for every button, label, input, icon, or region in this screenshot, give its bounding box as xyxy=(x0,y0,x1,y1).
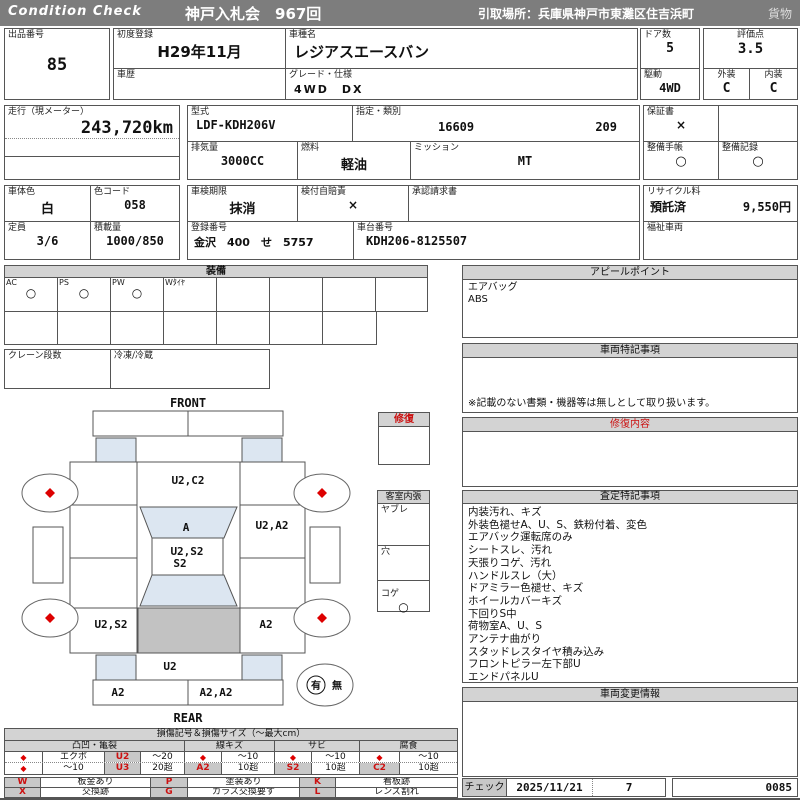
model-code-cell: 型式 LDF-KDH206V xyxy=(188,106,353,142)
mark-left-rear: U2,S2 xyxy=(94,618,127,631)
legend-cell: ガラス交換要す xyxy=(188,788,300,797)
legend-code-k: K xyxy=(300,778,336,787)
interior-grade-cell: 内装 C xyxy=(750,69,797,99)
legend-code-w: W xyxy=(5,778,41,787)
inspection-cell: 車検期限 抹消 xyxy=(188,186,298,222)
appeal-line: エアバッグ xyxy=(468,282,792,294)
color-code-label: 色コード xyxy=(91,186,179,198)
jibaiseki-cell: 検付自賠責 × xyxy=(298,186,409,222)
freezer-label: 冷凍/冷蔵 xyxy=(111,350,269,362)
assessment-panel: 査定特記事項 内装汚れ、キズ 外装色褪せA、U、S、鉄粉付着、変色 エアバック運… xyxy=(462,490,798,683)
doors-cell: ドア数 5 xyxy=(641,29,699,69)
damage-diamond-icon: ◆ xyxy=(185,752,222,762)
serial-box: 0085 xyxy=(672,778,798,797)
legend-cell: エクボ xyxy=(43,752,105,762)
welfare-label: 福祉車両 xyxy=(644,222,797,234)
legend-group-rust: サビ xyxy=(275,741,360,751)
right-mirror xyxy=(310,527,340,583)
mark-rear-bumper-right: A2,A2 xyxy=(199,686,232,699)
exterior-grade-label: 外装 xyxy=(704,69,749,81)
maintenance-book-label: 整備手帳 xyxy=(644,142,718,154)
equipment-cell-empty xyxy=(111,312,164,344)
exterior-grade-cell: 外装 C xyxy=(704,69,750,99)
grade-value: 4WD DX xyxy=(286,81,637,97)
legend-cell: 10超 xyxy=(400,763,457,774)
repair-codes-legend: W 板金あり P 塗装あり K 看板跡 X 交換跡 G ガラス交換要す L レン… xyxy=(4,777,458,798)
equipment-cell-empty xyxy=(5,312,58,344)
recycle-cell: リサイクル料 預託済 9,550円 xyxy=(644,186,797,222)
assessment-line: 下回りS中 xyxy=(468,608,792,621)
crane-freezer-box: クレーン段数 冷凍/冷蔵 xyxy=(4,349,270,389)
lot-number-label: 出品番号 xyxy=(5,29,109,41)
freezer-cell: 冷凍/冷蔵 xyxy=(111,350,269,388)
history-label: 車歴 xyxy=(114,69,285,81)
legend-code-s2: S2 xyxy=(275,763,312,774)
vehicle-notes-title: 車両特記事項 xyxy=(463,344,797,358)
model-name-cell: 車種名 レジアスエースバン xyxy=(286,29,637,69)
recycle-box: リサイクル料 預託済 9,550円 福祉車両 xyxy=(643,185,798,260)
appeal-line: ABS xyxy=(468,294,792,306)
legend-group-dent: 凸凹・亀裂 xyxy=(5,741,185,751)
capacity-value: 3/6 xyxy=(5,234,90,248)
legend-cell: ～10 xyxy=(312,752,360,762)
maintenance-book-cell: 整備手帳 ○ xyxy=(644,142,719,179)
maintenance-book-value: ○ xyxy=(644,154,718,169)
mileage-box: 走行（現メーター） 243,720km xyxy=(4,105,180,180)
cabin-row-burn: コゲ ○ xyxy=(378,580,429,611)
jibaiseki-value: × xyxy=(298,198,408,212)
legend-code-g: G xyxy=(151,788,188,797)
mark-tailgate: U2 xyxy=(163,660,176,673)
assessment-line: ハンドルスレ（大） xyxy=(468,570,792,583)
maintenance-record-label: 整備記録 xyxy=(719,142,797,154)
capacity-cell: 定員 3/6 xyxy=(5,222,91,259)
mark-rear-bumper-left: A2 xyxy=(111,686,124,699)
mark-right-rear: A2 xyxy=(259,618,272,631)
history-cell: 車歴 xyxy=(114,69,286,99)
crane-cell: クレーン段数 xyxy=(5,350,111,388)
mileage-divider xyxy=(5,138,179,156)
assessment-title: 査定特記事項 xyxy=(463,491,797,504)
legend-code-u3: U3 xyxy=(105,763,141,774)
legend-cell: ～10 xyxy=(222,752,275,762)
recycle-status: 預託済 xyxy=(650,198,686,215)
title-bar: Condition Check 神戸入札会 967回 引取場所：兵庫県神戸市東灘… xyxy=(0,0,800,26)
lot-number-value: 85 xyxy=(5,55,109,75)
appeal-panel: アピールポイント エアバッグ ABS xyxy=(462,265,798,338)
pickup-location: 引取場所：兵庫県神戸市東灘区住吉浜町 xyxy=(478,5,694,22)
legend-cell: 10超 xyxy=(312,763,360,774)
rear-label: REAR xyxy=(174,711,204,725)
first-registration-label: 初度登録 xyxy=(114,29,285,41)
type-number-value: 16609 xyxy=(438,120,474,134)
type-class-label: 指定・類別 xyxy=(353,106,639,118)
load-value: 1000/850 xyxy=(91,234,179,248)
exterior-grade-value: C xyxy=(704,81,749,96)
damage-diamond-icon: ◆ xyxy=(5,763,43,774)
legend-cell: 10超 xyxy=(222,763,275,774)
load-cell: 積載量 1000/850 xyxy=(91,222,179,259)
damage-diagram: FRONT U2,C2 A U2,S2 S2 U2,A2 U2,S2 A2 xyxy=(0,398,368,730)
assessment-line: ドアミラー色褪せ、キズ xyxy=(468,582,792,595)
rear-left-corner xyxy=(96,655,136,680)
check-date: 2025/11/21 xyxy=(507,779,593,796)
damage-diamond-icon: ◆ xyxy=(360,752,400,762)
rear-cargo-panel xyxy=(138,608,240,653)
chassis-number-cell: 車台番号 KDH206-8125507 xyxy=(354,222,639,259)
interior-grade-value: C xyxy=(750,81,797,96)
front-left-corner xyxy=(96,438,136,463)
equipment-cell-empty xyxy=(323,278,376,311)
approval-label: 承認請求書 xyxy=(409,186,639,198)
displacement-cell: 排気量 3000CC xyxy=(188,142,298,179)
doors-value: 5 xyxy=(641,41,699,56)
maintenance-record-cell: 整備記録 ○ xyxy=(719,142,797,179)
mileage-value: 243,720km xyxy=(5,118,179,138)
equipment-cell-empty xyxy=(323,312,376,344)
body-color-label: 車体色 xyxy=(5,186,90,198)
warranty-empty-cell xyxy=(719,106,797,142)
engine-box: 型式 LDF-KDH206V 指定・類別 16609 209 排気量 3000C… xyxy=(187,105,640,180)
class-number-value: 209 xyxy=(595,120,617,134)
legend-cell: 看板跡 xyxy=(336,778,457,787)
equipment-cell-empty xyxy=(217,312,270,344)
doors-label: ドア数 xyxy=(641,29,699,41)
model-code-value: LDF-KDH206V xyxy=(188,118,352,132)
assessment-line: 天張りコゲ、汚れ xyxy=(468,557,792,570)
warranty-box: 保証書 × 整備手帳 ○ 整備記録 ○ xyxy=(643,105,798,180)
registration-number-value: 金沢 400 せ 5757 xyxy=(188,234,353,250)
legend-cell: ～10 xyxy=(43,763,105,774)
equipment-cell-empty xyxy=(58,312,111,344)
transmission-label: ミッション xyxy=(411,142,639,154)
legend-cell: ～10 xyxy=(400,752,457,762)
legend-title: 損傷記号＆損傷サイズ（～最大cm） xyxy=(5,729,457,741)
interior-grade-label: 内装 xyxy=(750,69,797,81)
legend-cell: ～20 xyxy=(141,752,185,762)
maintenance-record-value: ○ xyxy=(719,154,797,169)
displacement-label: 排気量 xyxy=(188,142,297,154)
left-mirror xyxy=(33,527,63,583)
drive-cell: 駆動 4WD xyxy=(641,69,699,99)
registration-number-label: 登録番号 xyxy=(188,222,353,234)
transmission-cell: ミッション MT xyxy=(411,142,639,179)
auction-title: 神戸入札会 967回 xyxy=(185,3,321,24)
assessment-line: フロントピラー左下部U xyxy=(468,658,792,671)
chassis-number-value: KDH206-8125507 xyxy=(354,234,639,248)
legend-code-x: X xyxy=(5,788,41,797)
mark-right-mid: U2,A2 xyxy=(255,519,288,532)
presence-yes: 有 xyxy=(311,679,321,692)
score-box: 評価点 3.5 外装 C 内装 C xyxy=(703,28,798,100)
brand-logo: Condition Check xyxy=(8,4,142,19)
equipment-cell-empty xyxy=(270,312,323,344)
legend-code-l: L xyxy=(300,788,336,797)
assessment-line: 内装汚れ、キズ xyxy=(468,506,792,519)
score-label: 評価点 xyxy=(704,29,797,41)
fuel-label: 燃料 xyxy=(298,142,410,154)
legend-code-p: P xyxy=(151,778,188,787)
repair-detail-title: 修復内容 xyxy=(463,418,797,432)
legend-cell: 交換跡 xyxy=(41,788,151,797)
type-class-cell: 指定・類別 16609 209 xyxy=(353,106,639,142)
serial-number: 0085 xyxy=(673,779,797,796)
repair-title: 修復 xyxy=(379,413,429,427)
drive-value: 4WD xyxy=(641,81,699,95)
auction-sheet: Condition Check 神戸入札会 967回 引取場所：兵庫県神戸市東灘… xyxy=(0,0,800,800)
legend-code-a2: A2 xyxy=(185,763,222,774)
color-code-cell: 色コード 058 xyxy=(91,186,179,222)
warranty-value: × xyxy=(644,118,718,132)
equipment-cell-pw: PW ○ xyxy=(111,278,164,311)
assessment-line: ホイールカバーキズ xyxy=(468,595,792,608)
mileage-label: 走行（現メーター） xyxy=(5,106,179,118)
load-label: 積載量 xyxy=(91,222,179,234)
assessment-line: エアバック運転席のみ xyxy=(468,531,792,544)
equipment-row-1: AC ○ PS ○ PW ○ Wﾀｲﾔ xyxy=(4,277,428,312)
mark-roof-b: S2 xyxy=(173,557,186,570)
assessment-line: エンドパネルU xyxy=(468,671,792,684)
repair-detail-panel: 修復内容 xyxy=(462,417,798,487)
warranty-label: 保証書 xyxy=(644,106,718,118)
check-box: チェック 2025/11/21 7 xyxy=(462,778,666,797)
damage-diamond-icon: ◆ xyxy=(275,752,312,762)
change-info-title: 車両変更情報 xyxy=(463,688,797,702)
model-name-value: レジアスエースバン xyxy=(286,41,637,62)
cargo-type: 貨物 xyxy=(768,5,792,22)
body-color-cell: 車体色 白 xyxy=(5,186,91,222)
fuel-value: 軽油 xyxy=(298,154,410,173)
lot-number-box: 出品番号 85 xyxy=(4,28,110,100)
check-label: チェック xyxy=(463,779,507,796)
legend-cell: 板金あり xyxy=(41,778,151,787)
jibaiseki-label: 検付自賠責 xyxy=(298,186,408,198)
damage-legend: 損傷記号＆損傷サイズ（～最大cm） 凸凹・亀裂 線キズ サビ 腐食 ◆ エクボ … xyxy=(4,728,458,775)
recycle-label: リサイクル料 xyxy=(644,186,797,198)
color-code-value: 058 xyxy=(91,198,179,212)
check-number: 7 xyxy=(593,779,665,796)
appeal-title: アピールポイント xyxy=(463,266,797,280)
score-cell: 評価点 3.5 xyxy=(704,29,797,69)
transmission-value: MT xyxy=(411,154,639,168)
equipment-cell-empty xyxy=(164,312,217,344)
score-value: 3.5 xyxy=(704,41,797,57)
body-color-value: 白 xyxy=(5,198,90,217)
vehicle-main-box: 初度登録 H29年11月 車種名 レジアスエースバン 車歴 グレード・仕様 4W… xyxy=(113,28,638,100)
rear-window xyxy=(140,575,237,606)
inspection-label: 車検期限 xyxy=(188,186,297,198)
cabin-title: 客室内張 xyxy=(378,491,429,504)
registration-number-cell: 登録番号 金沢 400 せ 5757 xyxy=(188,222,354,259)
legend-cell: 塗装あり xyxy=(188,778,300,787)
equipment-cell-empty xyxy=(270,278,323,311)
equipment-cell-ps: PS ○ xyxy=(58,278,111,311)
cabin-row-hole: 穴 xyxy=(378,545,429,580)
rear-right-corner xyxy=(242,655,282,680)
grade-cell: グレード・仕様 4WD DX xyxy=(286,69,637,99)
damage-diamond-icon: ◆ xyxy=(5,752,43,762)
approval-cell: 承認請求書 xyxy=(409,186,639,222)
legend-code-c2: C2 xyxy=(360,763,400,774)
warranty-cell: 保証書 × xyxy=(644,106,719,142)
equipment-cell-wtire: Wﾀｲﾔ xyxy=(164,278,217,311)
recycle-fee: 9,550円 xyxy=(743,198,791,215)
legend-cell: レンズ割れ xyxy=(336,788,457,797)
assessment-line: 荷物室A、U、S xyxy=(468,620,792,633)
mark-front-center: U2,C2 xyxy=(171,474,204,487)
chassis-number-label: 車台番号 xyxy=(354,222,639,234)
inspection-value: 抹消 xyxy=(188,198,297,217)
legend-group-corrosion: 腐食 xyxy=(360,741,457,751)
equipment-cell-ac: AC ○ xyxy=(5,278,58,311)
model-code-label: 型式 xyxy=(188,106,352,118)
cabin-row-tear: ヤブレ xyxy=(378,504,429,545)
mark-windshield: A xyxy=(183,521,190,534)
vehicle-notes-panel: 車両特記事項 ※記載のない書類・機器等は無しとして取り扱います。 xyxy=(462,343,798,413)
repair-box: 修復 xyxy=(378,412,430,465)
crane-label: クレーン段数 xyxy=(5,350,110,362)
equipment-cell-empty xyxy=(217,278,270,311)
color-capacity-box: 車体色 白 色コード 058 定員 3/6 積載量 1000/850 xyxy=(4,185,180,260)
assessment-line: シートスレ、汚れ xyxy=(468,544,792,557)
capacity-label: 定員 xyxy=(5,222,90,234)
mileage-empty-row xyxy=(5,156,179,179)
legend-cell: 20超 xyxy=(141,763,185,774)
equipment-row-2 xyxy=(4,311,377,345)
doors-drive-box: ドア数 5 駆動 4WD xyxy=(640,28,700,100)
assessment-line: 外装色褪せA、U、S、鉄粉付着、変色 xyxy=(468,519,792,532)
registration-box: 車検期限 抹消 検付自賠責 × 承認請求書 登録番号 金沢 400 せ 5757… xyxy=(187,185,640,260)
legend-group-scratch: 線キズ xyxy=(185,741,275,751)
presence-no: 無 xyxy=(332,679,342,692)
cabin-box: 客室内張 ヤブレ 穴 コゲ ○ xyxy=(377,490,430,612)
front-right-corner xyxy=(242,438,282,463)
fuel-cell: 燃料 軽油 xyxy=(298,142,411,179)
front-label: FRONT xyxy=(170,398,206,410)
welfare-cell: 福祉車両 xyxy=(644,222,797,259)
change-info-panel: 車両変更情報 xyxy=(462,687,798,777)
assessment-line: アンテナ曲がり xyxy=(468,633,792,646)
displacement-value: 3000CC xyxy=(188,154,297,168)
first-registration-cell: 初度登録 H29年11月 xyxy=(114,29,286,69)
first-registration-value: H29年11月 xyxy=(114,41,285,62)
assessment-line: スタッドレスタイヤ積み込み xyxy=(468,646,792,659)
vehicle-notes-note: ※記載のない書類・機器等は無しとして取り扱います。 xyxy=(468,394,715,409)
grade-label: グレード・仕様 xyxy=(286,69,637,81)
equipment-cell-empty xyxy=(376,278,427,311)
drive-label: 駆動 xyxy=(641,69,699,81)
model-name-label: 車種名 xyxy=(286,29,637,41)
legend-code-u2: U2 xyxy=(105,752,141,762)
